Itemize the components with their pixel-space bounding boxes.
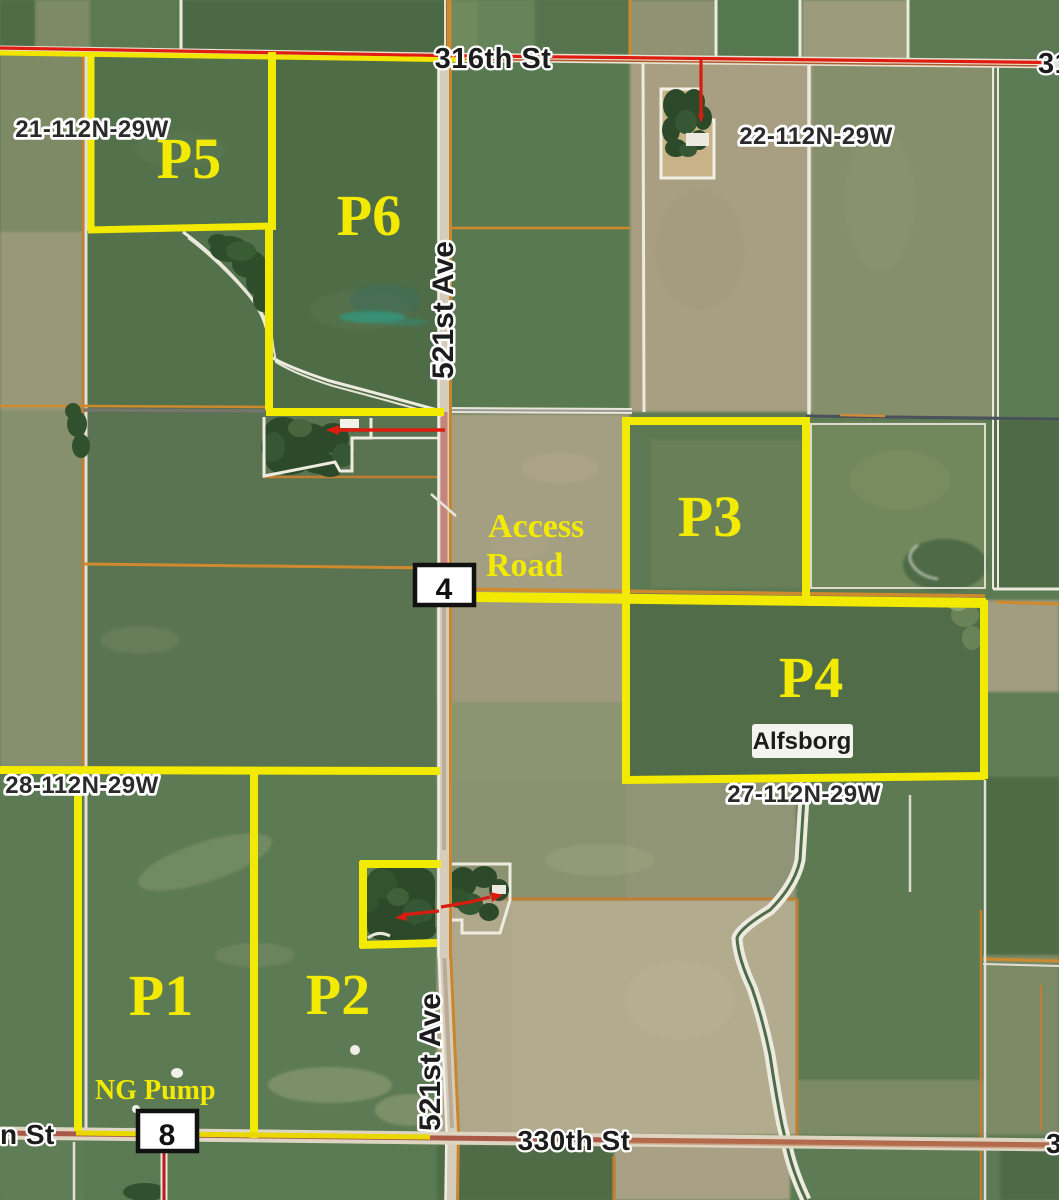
svg-text:P5: P5 [157,126,221,191]
svg-text:8: 8 [159,1119,176,1152]
svg-text:521st Ave: 521st Ave [414,993,447,1131]
svg-text:521st Ave: 521st Ave [427,241,460,379]
svg-text:22-112N-29W: 22-112N-29W [739,123,893,150]
svg-text:27-112N-29W: 27-112N-29W [727,781,881,808]
svg-text:NG Pump: NG Pump [95,1075,216,1106]
svg-text:330th St: 330th St [518,1125,631,1156]
svg-text:33: 33 [1046,1128,1059,1159]
svg-text:28-112N-29W: 28-112N-29W [5,772,159,799]
svg-text:4: 4 [436,573,453,606]
svg-text:P1: P1 [129,963,193,1028]
svg-text:n St: n St [0,1119,55,1150]
svg-text:21-112N-29W: 21-112N-29W [15,116,169,143]
svg-text:Alfsborg: Alfsborg [753,728,852,755]
svg-text:P6: P6 [337,183,401,248]
svg-text:316th St: 316th St [435,43,552,75]
svg-text:P2: P2 [306,962,370,1027]
svg-text:P3: P3 [678,484,742,549]
svg-text:316t: 316t [1038,48,1059,80]
svg-text:P4: P4 [779,645,843,710]
svg-text:Access: Access [488,508,584,545]
svg-text:Road: Road [486,547,564,584]
